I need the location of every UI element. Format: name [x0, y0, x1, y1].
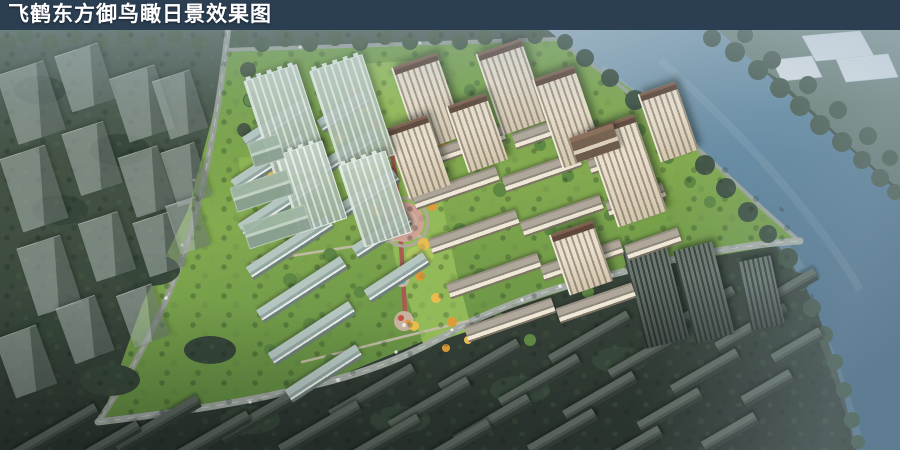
title-bar: 飞鹤东方御鸟瞰日景效果图 [0, 0, 900, 30]
page-title: 飞鹤东方御鸟瞰日景效果图 [0, 0, 900, 30]
ground-layer [0, 30, 900, 450]
screenshot-root: 飞鹤东方御鸟瞰日景效果图 [0, 0, 900, 450]
aerial-rendering [0, 30, 900, 450]
small-fountain [398, 276, 406, 284]
